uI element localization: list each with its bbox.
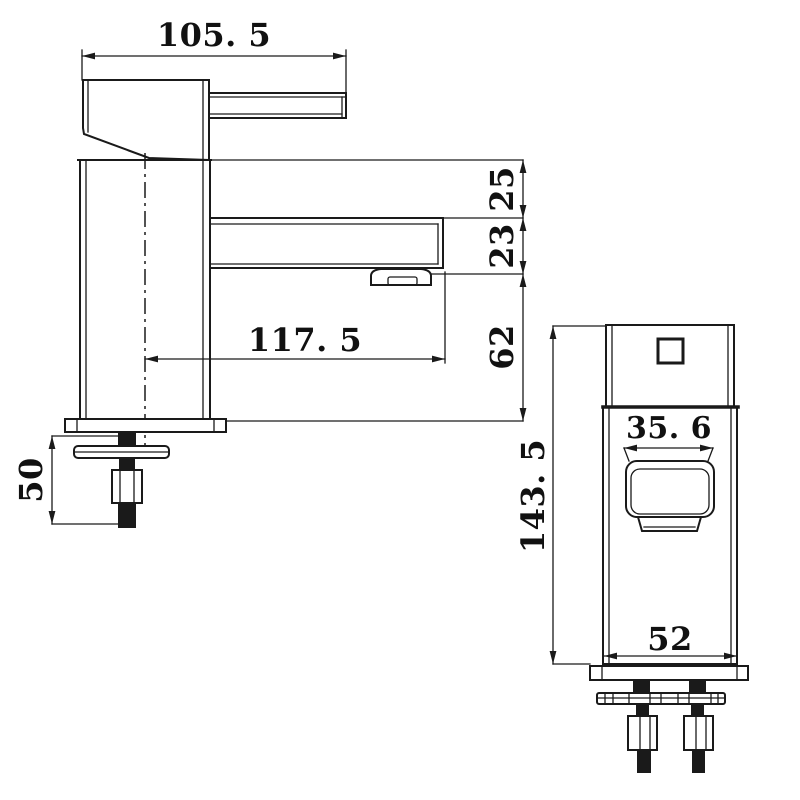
dimension-overall-height: 143. 5	[514, 326, 606, 664]
threaded-rod-left	[637, 750, 651, 773]
handle-button	[658, 339, 683, 363]
aerator-side	[371, 269, 431, 285]
arrowhead-right	[333, 53, 346, 60]
dimension-chain-25-23-62: 25 23 62	[211, 160, 526, 421]
handle-front	[606, 325, 734, 407]
dim-label-handle-length: 105. 5	[157, 16, 271, 54]
threaded-stud-left	[633, 680, 650, 693]
dim-label-23: 23	[483, 223, 521, 269]
mounting-hardware-side	[74, 432, 169, 528]
deck-plate-front	[590, 666, 748, 680]
threaded-rod	[118, 503, 136, 528]
dim-label-25: 25	[483, 166, 521, 212]
lever-handle-side	[83, 80, 346, 160]
dim-label-overall-height: 143. 5	[514, 439, 552, 553]
front-view: 35. 6 52 143. 5	[514, 325, 748, 773]
faucet-technical-drawing: 105. 5	[0, 0, 800, 800]
spout-side	[210, 218, 443, 268]
threaded-stud	[118, 432, 136, 446]
faucet-body-side	[78, 153, 211, 447]
threaded-rod-right	[692, 750, 705, 773]
spout-front	[626, 461, 714, 531]
dim-label-spout-reach: 117. 5	[248, 321, 362, 359]
mounting-nut	[112, 470, 142, 503]
technical-drawing-canvas: 105. 5	[0, 0, 800, 800]
threaded-stud-right	[689, 680, 706, 693]
dimension-spout-width: 35. 6	[624, 411, 713, 461]
dimension-body-width: 52	[604, 620, 737, 659]
dim-label-62: 62	[483, 324, 521, 370]
mounting-hardware-front	[597, 680, 725, 773]
dim-label-spout-width: 35. 6	[626, 411, 712, 446]
dim-label-body-width: 52	[647, 620, 693, 658]
deck-plate-side	[65, 419, 226, 432]
spout-lip	[638, 517, 701, 531]
side-view: 105. 5	[12, 16, 526, 528]
dim-label-50: 50	[12, 457, 50, 503]
arrowhead-left	[82, 53, 95, 60]
mounting-nut-left	[628, 716, 657, 750]
mounting-nut-right	[684, 716, 713, 750]
